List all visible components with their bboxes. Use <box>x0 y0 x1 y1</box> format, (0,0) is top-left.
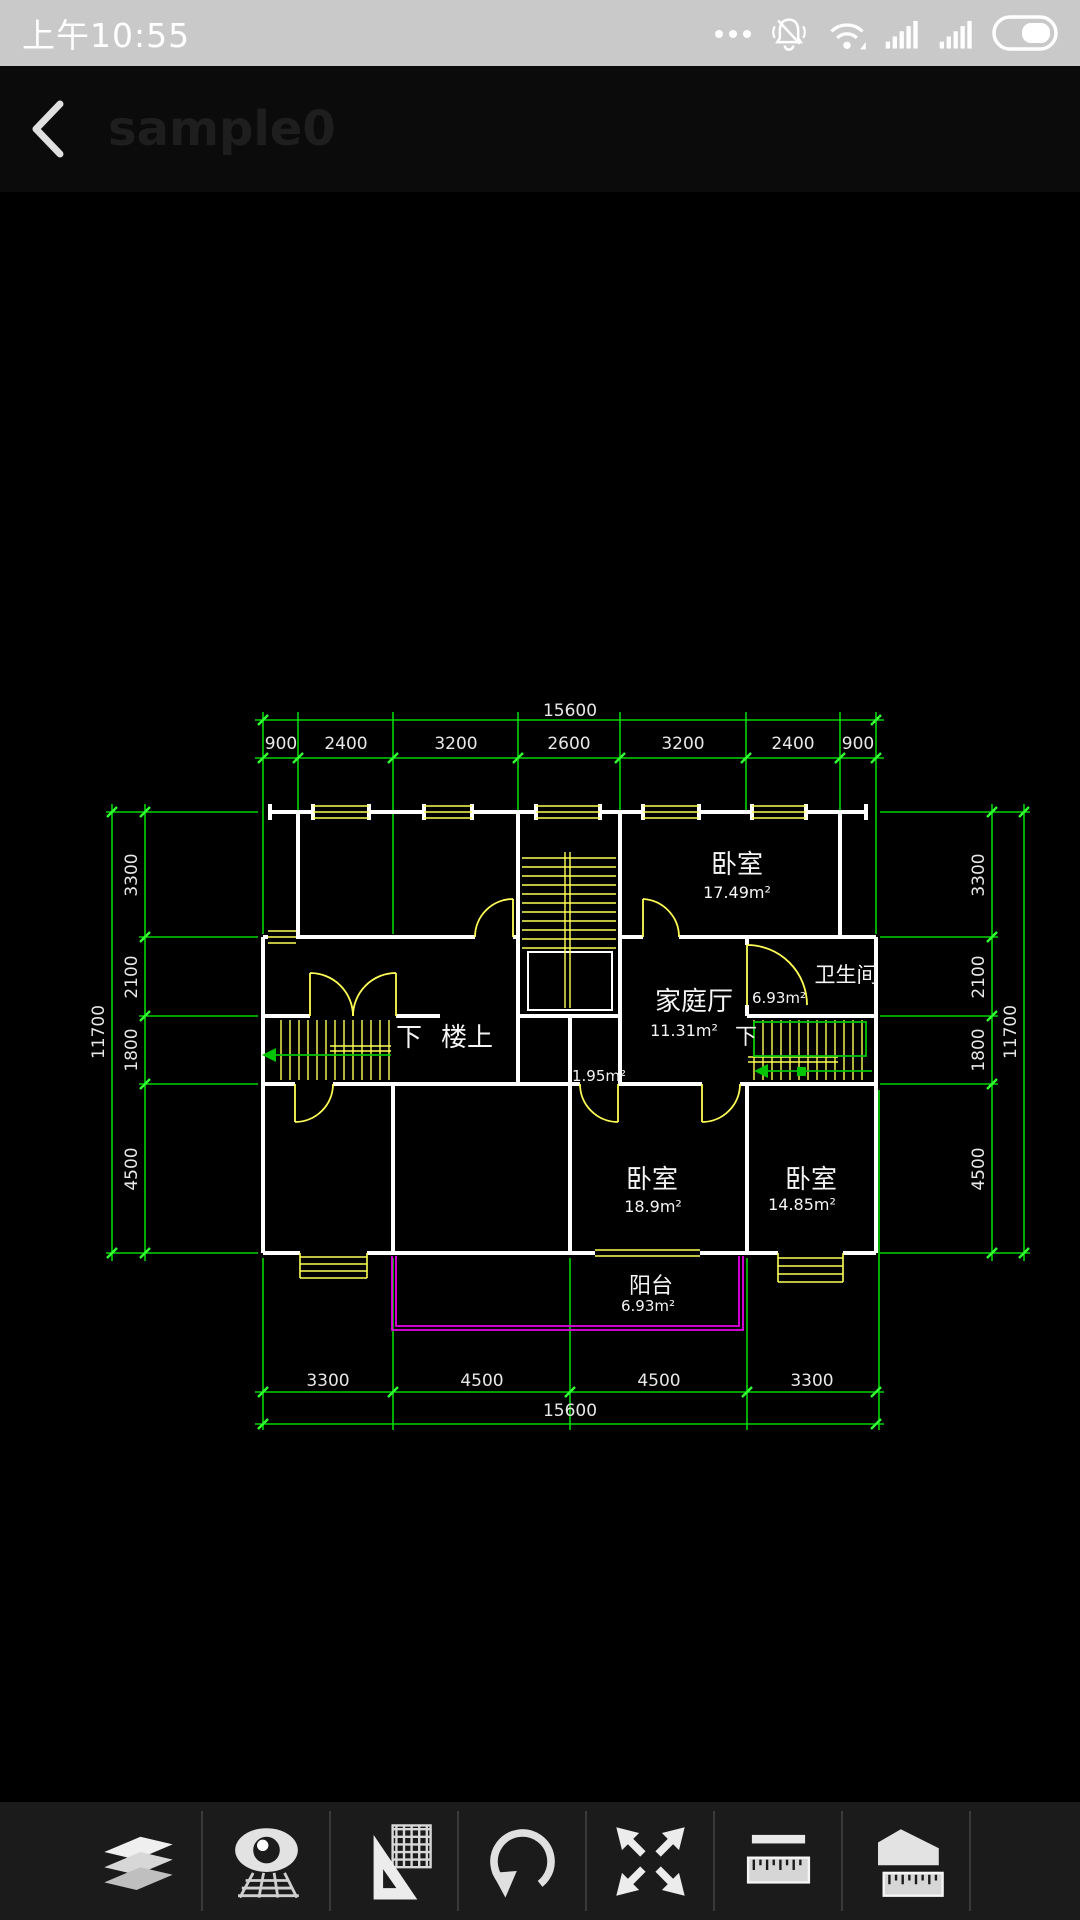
room-area: 14.85m² <box>768 1195 836 1214</box>
stairs-right <box>748 1020 872 1080</box>
measure-area-icon <box>859 1814 954 1909</box>
measure-length-icon <box>731 1814 826 1909</box>
dim-top-seg: 3200 <box>434 734 477 754</box>
dim-bottom-seg: 3300 <box>306 1371 349 1391</box>
dim-bottom-seg: 3300 <box>790 1371 833 1391</box>
dim-right-seg: 2100 <box>969 955 989 998</box>
mute-icon <box>768 13 810 53</box>
back-chevron-icon <box>26 98 70 160</box>
dim-top-seg: 900 <box>842 734 874 754</box>
measure-area-button[interactable] <box>843 1811 971 1911</box>
fit-screen-icon <box>603 1814 698 1909</box>
page-title: sample0 <box>108 101 336 157</box>
dim-top-total: 15600 <box>543 701 597 721</box>
measure-length-button[interactable] <box>715 1811 843 1911</box>
rotate-icon <box>475 1814 570 1909</box>
signal-sim1-icon <box>884 13 922 53</box>
room-name: 卧室 <box>626 1165 678 1195</box>
bay-window-left <box>300 1253 367 1278</box>
rotate-button[interactable] <box>459 1811 587 1911</box>
dim-right-total: 11700 <box>1001 1005 1021 1059</box>
annotation-closet-area: 1.95m² <box>572 1067 626 1085</box>
room-area: 18.9m² <box>624 1197 682 1216</box>
dim-top-seg: 2400 <box>324 734 367 754</box>
room-area: 6.93m² <box>621 1297 675 1315</box>
annotation-upstairs: 楼上 <box>441 1023 493 1053</box>
dim-bottom-seg: 4500 <box>460 1371 503 1391</box>
layers-button[interactable] <box>75 1811 203 1911</box>
drawing-canvas[interactable]: 15600 900 2400 3200 2600 3200 2400 900 1… <box>0 192 1080 1802</box>
dim-left-seg: 3300 <box>122 853 142 896</box>
dim-right-seg: 3300 <box>969 853 989 896</box>
dim-bottom-seg: 4500 <box>637 1371 680 1391</box>
annotation-down-right: 下 <box>735 1025 757 1050</box>
room-name: 卧室 <box>711 850 763 880</box>
set-square-grid-icon <box>347 1814 442 1909</box>
dim-top-seg: 900 <box>265 734 297 754</box>
bay-window-right <box>778 1253 843 1282</box>
bottom-toolbar <box>0 1802 1080 1920</box>
back-button[interactable] <box>0 66 96 192</box>
status-icons <box>714 13 1058 53</box>
drawing-tools-button[interactable] <box>331 1811 459 1911</box>
dimension-labels: 15600 900 2400 3200 2600 3200 2400 900 1… <box>89 701 1021 1421</box>
dim-left-seg: 2100 <box>122 955 142 998</box>
dim-bottom-total: 15600 <box>543 1401 597 1421</box>
room-area: 6.93m² <box>752 989 806 1007</box>
room-area: 17.49m² <box>703 883 771 902</box>
wifi-icon <box>826 15 868 51</box>
more-notifications-icon <box>714 26 752 40</box>
room-name: 阳台 <box>629 1274 673 1299</box>
fit-screen-button[interactable] <box>587 1811 715 1911</box>
room-name: 卫生间 <box>815 963 878 987</box>
dim-right-seg: 1800 <box>969 1028 989 1071</box>
room-area: 11.31m² <box>650 1021 718 1040</box>
dim-left-seg: 4500 <box>122 1147 142 1190</box>
dim-top-seg: 3200 <box>661 734 704 754</box>
battery-icon <box>992 15 1058 51</box>
dim-right-seg: 4500 <box>969 1147 989 1190</box>
dim-left-seg: 1800 <box>122 1028 142 1071</box>
layers-icon <box>91 1814 186 1909</box>
room-name: 家庭厅 <box>655 987 733 1017</box>
signal-sim2-icon <box>938 13 976 53</box>
visual-style-icon <box>219 1814 314 1909</box>
visual-style-button[interactable] <box>203 1811 331 1911</box>
room-name: 卧室 <box>785 1165 837 1195</box>
stairs-left <box>262 1020 391 1080</box>
status-time: 上午10:55 <box>22 9 190 57</box>
dim-top-seg: 2600 <box>547 734 590 754</box>
dim-top-seg: 2400 <box>771 734 814 754</box>
stairs-center <box>522 852 616 1008</box>
title-bar: sample0 <box>0 66 1080 192</box>
status-bar: 上午10:55 <box>0 0 1080 66</box>
annotation-down-left: 下 <box>396 1023 422 1053</box>
dim-left-total: 11700 <box>89 1005 109 1059</box>
floor-plan: 15600 900 2400 3200 2600 3200 2400 900 1… <box>0 192 1080 1802</box>
balcony-outline <box>392 1256 743 1330</box>
